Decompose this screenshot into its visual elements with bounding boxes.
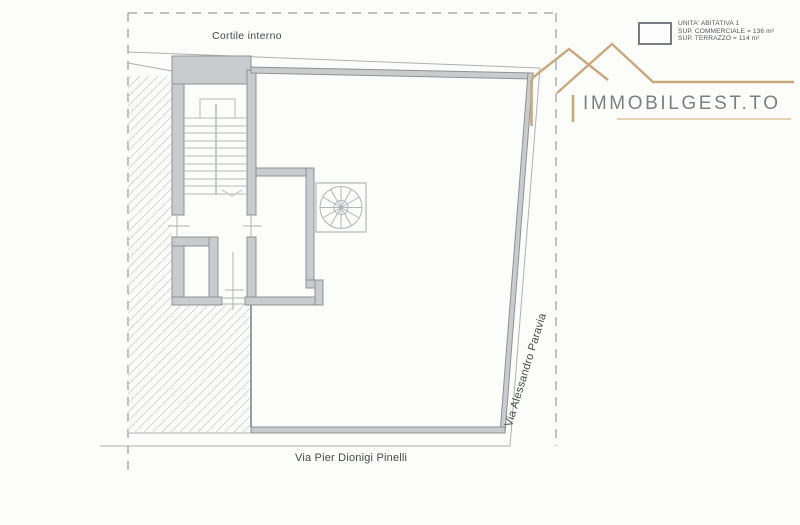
legend-text-block: UNITA' ABITATIVA 1 SUP. COMMERCIALE = 13… <box>678 20 774 43</box>
terrace-walls <box>251 67 533 433</box>
legend-swatch-box <box>638 22 672 45</box>
floor-plan-page: Cortile interno Via Pier Dionigi Pinelli… <box>0 0 800 525</box>
apartment-walls <box>172 56 323 305</box>
brand-logo-text: IMMOBILGEST.TO <box>583 93 781 115</box>
spiral-staircase <box>316 183 366 232</box>
street-label-bottom: Via Pier Dionigi Pinelli <box>295 452 407 464</box>
staircase <box>184 99 247 196</box>
legend: UNITA' ABITATIVA 1 SUP. COMMERCIALE = 13… <box>638 20 798 46</box>
legend-terrace-area: SUP. TERRAZZO = 114 m² <box>678 35 774 43</box>
legend-commercial-area: SUP. COMMERCIALE = 136 m² <box>678 28 774 36</box>
courtyard-label: Cortile interno <box>212 30 282 42</box>
hatched-area <box>128 76 250 433</box>
floor-plan-drawing <box>0 0 800 525</box>
legend-unit-label: UNITA' ABITATIVA 1 <box>678 20 774 28</box>
